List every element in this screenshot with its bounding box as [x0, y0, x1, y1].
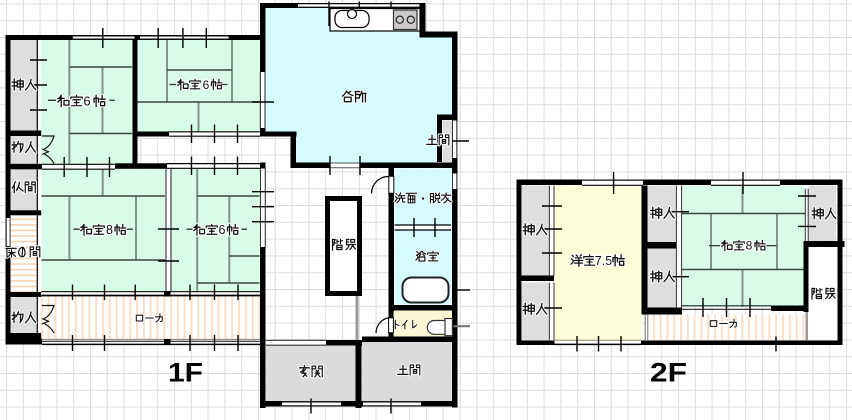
svg-text:8: 8 — [746, 239, 753, 253]
svg-text:6: 6 — [219, 223, 226, 237]
svg-text:1F: 1F — [168, 358, 203, 388]
svg-text:7.5: 7.5 — [595, 254, 612, 268]
svg-text:8: 8 — [106, 223, 113, 237]
svg-text:6: 6 — [203, 78, 210, 92]
svg-text:2F: 2F — [650, 358, 687, 388]
svg-text:6: 6 — [83, 93, 90, 108]
